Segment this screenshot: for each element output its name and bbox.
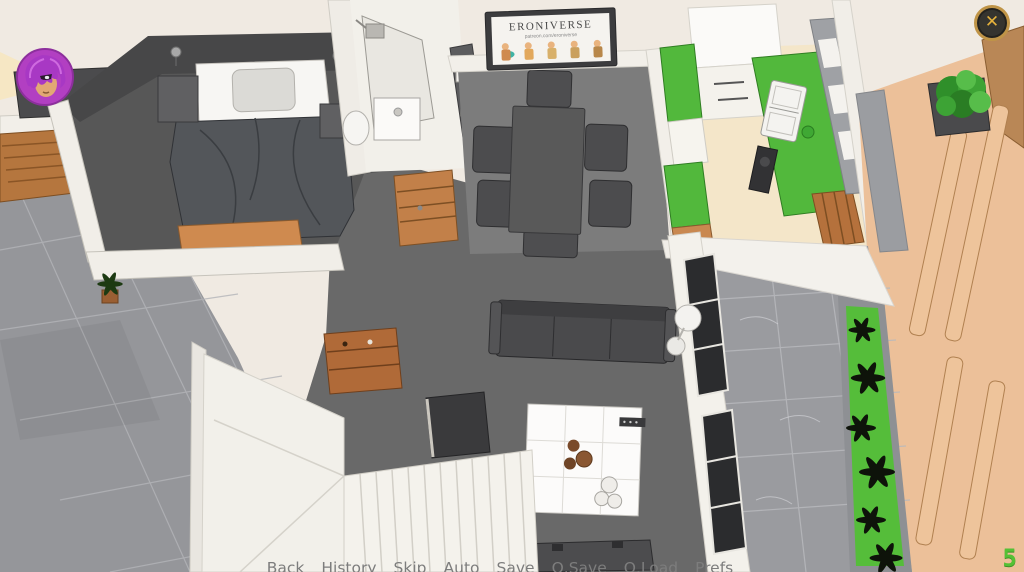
kitchen-counter-green <box>664 162 710 228</box>
close-icon: ✕ <box>985 14 999 31</box>
nightstand <box>158 76 198 122</box>
shower-head-icon <box>366 24 384 38</box>
menu-item-save[interactable]: Save <box>497 559 535 572</box>
menu-item-auto[interactable]: Auto <box>444 559 480 572</box>
open-doorway <box>426 392 490 458</box>
toilet <box>343 111 369 145</box>
menu-item-qsave[interactable]: Q.Save <box>552 559 607 572</box>
purple-hair-girl-avatar-icon <box>16 48 74 106</box>
close-button[interactable]: ✕ <box>974 5 1010 41</box>
dining-table <box>509 106 585 234</box>
kitchen-counter-green <box>660 44 702 122</box>
bathroom-sink <box>374 98 420 140</box>
quick-menu: Back History Skip Auto Save Q.Save Q.Loa… <box>0 559 1024 572</box>
dining-chair <box>472 126 516 173</box>
menu-item-qload[interactable]: Q.Load <box>624 559 678 572</box>
coffee-table <box>524 404 646 516</box>
wall-poster: ERONIVERSE patreon.com/eroniverse <box>485 8 617 71</box>
menu-item-skip[interactable]: Skip <box>394 559 427 572</box>
bed-pillow <box>232 68 295 112</box>
dining-area <box>458 64 670 258</box>
wooden-shelf <box>324 328 402 394</box>
menu-item-prefs[interactable]: Prefs <box>695 559 733 572</box>
sofa <box>489 300 677 364</box>
dining-chair <box>588 180 632 227</box>
apartment-topdown-scene: ERONIVERSE patreon.com/eroniverse <box>0 0 1024 572</box>
game-screen: ERONIVERSE patreon.com/eroniverse ✕ Back… <box>0 0 1024 572</box>
menu-item-history[interactable]: History <box>321 559 376 572</box>
tv-remote <box>619 417 645 427</box>
dining-chair <box>584 124 628 171</box>
counter-value: 5 <box>1003 544 1017 572</box>
dining-chair <box>527 70 572 108</box>
player-avatar-button[interactable] <box>16 48 74 106</box>
wooden-door <box>394 170 458 246</box>
menu-item-back[interactable]: Back <box>267 559 305 572</box>
